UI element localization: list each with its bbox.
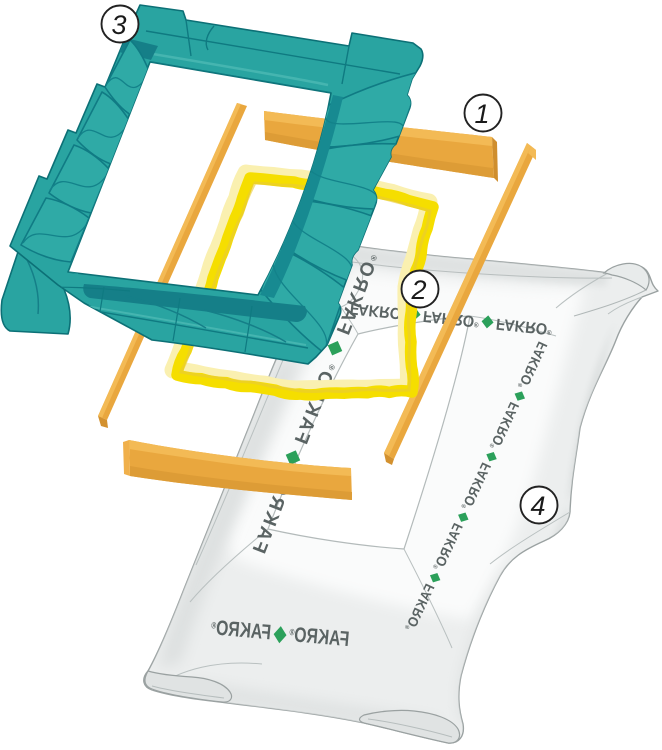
svg-text:4: 4 bbox=[530, 491, 545, 521]
svg-text:2: 2 bbox=[410, 275, 426, 305]
svg-text:3: 3 bbox=[111, 10, 126, 40]
svg-text:1: 1 bbox=[474, 99, 489, 129]
